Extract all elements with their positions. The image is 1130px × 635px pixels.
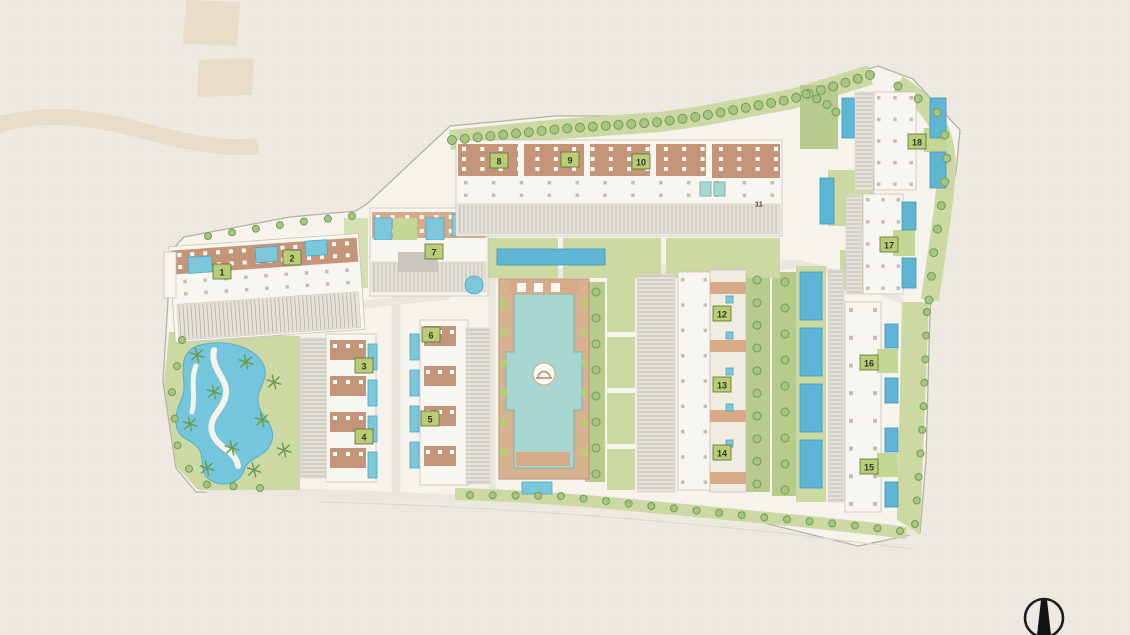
park-edge-trees-tree — [169, 389, 176, 396]
bosque-trees-tree — [753, 457, 761, 465]
vertical-lap-pool-1 — [800, 272, 822, 320]
right-lower-tree-row-tree — [920, 403, 927, 410]
courtyard-garden-trees-tree — [592, 392, 600, 400]
bottom-tree-row-tree — [648, 503, 655, 510]
building-label-15: 15 — [864, 463, 874, 473]
top-tree-row-tree — [537, 126, 546, 135]
right-upper-tree-row-tree — [943, 154, 951, 162]
top-tree-row-tree — [524, 128, 533, 137]
park-edge-trees-tree — [174, 363, 181, 370]
garden-column-trees-tree — [781, 278, 789, 286]
pool-15b — [885, 482, 898, 507]
plunge-pool — [726, 368, 733, 375]
top-tree-row-tree — [550, 125, 559, 134]
courtyard-garden-trees-tree — [592, 314, 600, 322]
decor-wave-band — [0, 117, 258, 147]
decor-rectangle-2 — [197, 58, 254, 97]
building-label-16: 16 — [864, 359, 874, 369]
bottom-tree-row-tree — [784, 516, 791, 523]
building-label-13: 13 — [717, 381, 727, 391]
top-tree-row-tree — [841, 78, 850, 87]
building-label-6: 6 — [428, 331, 433, 341]
bosque-trees-tree — [753, 299, 761, 307]
townhouse-8 — [458, 144, 518, 176]
right-lower-tree-row-tree — [919, 426, 926, 433]
top-tree-row-tree — [729, 106, 738, 115]
right-lower-tree-row-tree — [913, 497, 920, 504]
cluster-3-4-parking — [300, 338, 326, 478]
park-edge-trees-tree — [174, 442, 181, 449]
building-label-12: 12 — [717, 310, 727, 320]
central-courtyard — [499, 279, 589, 494]
park-edge-trees-tree — [203, 481, 210, 488]
vertical-lap-pool-3 — [800, 384, 822, 432]
bottom-tree-row-tree — [670, 505, 677, 512]
courtyard-garden-trees-tree — [592, 470, 600, 478]
right-upper-tree-row-tree — [934, 225, 942, 233]
pool-cluster-2b — [305, 240, 328, 256]
bottom-tree-row-tree — [716, 509, 723, 516]
garden-column-trees-tree — [781, 460, 789, 468]
bottom-tree-row-tree — [851, 522, 858, 529]
top-tree-row-tree — [448, 136, 457, 145]
vertical-lap-pool-2 — [800, 328, 822, 376]
right-upper-tree-row-tree — [925, 296, 933, 304]
pool-5a — [410, 406, 419, 432]
lawn-divider — [607, 388, 635, 393]
bottom-tree-row-tree — [693, 507, 700, 514]
pool-11a — [700, 182, 711, 196]
right-upper-tree-row-tree — [930, 249, 938, 257]
bottom-tree-row-tree — [603, 498, 610, 505]
top-tree-row-tree — [512, 129, 521, 138]
bottom-tree-row-tree — [806, 518, 813, 525]
right-upper-tree-row-tree — [914, 95, 922, 103]
cluster-18-parking — [855, 92, 873, 190]
brand-logo — [533, 363, 555, 385]
park-edge-trees-tree — [186, 465, 193, 472]
right-lower-tree-row-tree — [915, 473, 922, 480]
garden-column-trees-tree — [781, 434, 789, 442]
top-tree-row-tree — [866, 71, 875, 80]
bosque-trees-tree — [753, 389, 761, 397]
right-upper-tree-row-tree — [941, 178, 949, 186]
bar-13 — [710, 340, 746, 352]
green-16 — [877, 349, 898, 373]
right-upper-tree-row-tree — [937, 202, 945, 210]
right-lower-tree-row-tree — [922, 356, 929, 363]
pavilion-bay — [534, 283, 543, 292]
garden-column-trees-tree — [781, 330, 789, 338]
top-tree-row-tree — [816, 86, 825, 95]
top-tree-row-tree — [678, 114, 687, 123]
masterplan-svg: 123456789101112131415161718 — [0, 0, 1130, 635]
west-block — [164, 252, 176, 298]
building-label-14: 14 — [717, 449, 727, 459]
bar-3a — [330, 340, 366, 360]
pool-cluster-1 — [188, 256, 213, 274]
garden-column-trees-tree — [781, 356, 789, 364]
top-tree-row-tree — [601, 121, 610, 130]
courtyard-pavilion-south — [516, 452, 570, 466]
bottom-tree-row-tree — [738, 512, 745, 519]
bottom-tree-row-tree — [512, 492, 519, 499]
bottom-tree-row-tree — [580, 495, 587, 502]
pool-3b — [368, 380, 377, 406]
pool-5b — [410, 442, 419, 468]
northeast-garden-trees-tree — [802, 90, 810, 98]
northeast-garden-trees-tree — [832, 108, 840, 116]
bar-6b — [424, 366, 456, 386]
compass-icon — [1025, 599, 1063, 635]
top-tree-row-tree — [665, 116, 674, 125]
park-edge-trees-tree — [257, 485, 264, 492]
pool-4b — [368, 452, 377, 478]
pool-ne-a — [842, 98, 856, 138]
top-row-courtyard — [458, 178, 780, 202]
park-path-2 — [192, 366, 196, 412]
building-label-7: 7 — [431, 248, 436, 258]
building-label-5: 5 — [427, 415, 432, 425]
green-15 — [877, 453, 898, 477]
pool-7a — [374, 218, 392, 240]
building-cluster-3-4 — [300, 334, 377, 482]
pool-15a — [885, 428, 898, 452]
garden-column-trees-tree — [781, 304, 789, 312]
bar-4b — [330, 448, 366, 468]
bottom-tree-row-tree — [761, 514, 768, 521]
garden-column-trees-tree — [781, 408, 789, 416]
bottom-tree-row-tree — [557, 493, 564, 500]
bottom-tree-row-tree — [489, 492, 496, 499]
top-left-cluster-trees-tree — [229, 229, 236, 236]
top-left-cluster-trees-tree — [252, 225, 259, 232]
park-edge-trees-tree — [179, 337, 186, 344]
building-label-18: 18 — [912, 138, 922, 148]
bar-14b — [710, 472, 746, 484]
right-upper-tree-row-tree — [941, 131, 949, 139]
vertical-lap-pool-4 — [800, 440, 822, 488]
right-lower-tree-row-tree — [917, 450, 924, 457]
pool-17a — [902, 202, 916, 230]
top-tree-row-tree — [853, 74, 862, 83]
stripe-zone — [855, 92, 873, 190]
pool-17b — [902, 258, 916, 288]
top-left-cluster-trees-tree — [324, 215, 331, 222]
top-tree-row-tree — [653, 118, 662, 127]
building-label-17: 17 — [884, 241, 894, 251]
pool-cluster-2a — [255, 246, 278, 262]
east-parking-column — [828, 270, 844, 502]
top-row-parking — [458, 204, 780, 234]
top-tree-row-tree — [486, 132, 495, 141]
park-edge-trees-tree — [230, 483, 237, 490]
top-tree-row-tree — [499, 130, 508, 139]
lawn-divider — [607, 332, 635, 337]
courtyard-garden-trees-tree — [592, 418, 600, 426]
masterplan-canvas: 123456789101112131415161718 — [0, 0, 1130, 635]
plunge-pool — [726, 332, 733, 339]
background-decor — [0, 0, 258, 147]
bottom-tree-row-tree — [625, 500, 632, 507]
courtyard-garden-trees-tree — [592, 366, 600, 374]
bosque-trees-tree — [753, 480, 761, 488]
pavilion-bay — [551, 283, 560, 292]
bottom-tree-row-tree — [897, 528, 904, 535]
northeast-garden-trees-tree — [823, 101, 831, 109]
right-lower-tree-row-tree — [912, 521, 919, 528]
right-upper-tree-row-tree — [927, 272, 935, 280]
top-tree-row-tree — [754, 101, 763, 110]
compass-needle — [1037, 600, 1051, 635]
round-pool — [465, 276, 483, 294]
bar-3b — [330, 376, 366, 396]
top-left-cluster-trees-tree — [349, 213, 356, 220]
bosque-trees-tree — [753, 367, 761, 375]
pool-16a — [885, 324, 898, 348]
pool-7b — [426, 218, 444, 240]
plunge-pool — [726, 404, 733, 411]
top-tree-row-tree — [779, 96, 788, 105]
mid-parking-column — [637, 274, 675, 492]
building-label-4: 4 — [361, 433, 366, 443]
decor-rectangle-1 — [183, 0, 240, 46]
top-left-cluster-trees-tree — [205, 233, 212, 240]
building-cluster-1-2 — [169, 233, 365, 342]
bottom-tree-row-tree — [467, 492, 474, 499]
top-left-cluster-trees-tree — [300, 218, 307, 225]
bar-14 — [710, 410, 746, 422]
northeast-garden-trees-tree — [813, 95, 821, 103]
building-cluster-5-6 — [410, 320, 490, 485]
pool-6b — [410, 370, 419, 396]
top-tree-row-tree — [614, 120, 623, 129]
cluster-17-parking — [846, 194, 862, 294]
plunge-pool — [726, 296, 733, 303]
pool-ne-b — [820, 178, 834, 224]
right-upper-tree-row-tree — [933, 109, 941, 117]
bosque-trees-tree — [753, 344, 761, 352]
top-left-cluster-trees-tree — [276, 222, 283, 229]
pool-11b — [714, 182, 725, 196]
garden-column-trees-tree — [781, 486, 789, 494]
bottom-tree-row-tree — [829, 520, 836, 527]
top-tree-row-tree — [588, 122, 597, 131]
right-lower-tree-row-tree — [923, 332, 930, 339]
right-lower-tree-row-tree — [924, 309, 931, 316]
top-tree-row-tree — [627, 120, 636, 129]
courtyard-garden-trees-tree — [592, 444, 600, 452]
courtyard-garden-trees-tree — [592, 288, 600, 296]
bosque-trees-tree — [753, 321, 761, 329]
building-label-2: 2 — [289, 254, 294, 264]
bosque-trees-tree — [753, 276, 761, 284]
bar-5b — [424, 446, 456, 466]
stripe-zone — [637, 274, 675, 492]
top-tree-row-tree — [640, 119, 649, 128]
bosque-trees-tree — [753, 412, 761, 420]
building-label-11: 11 — [755, 200, 763, 209]
lawn-divider — [607, 444, 635, 449]
building-label-9: 9 — [567, 156, 572, 166]
townhouse-10b — [656, 144, 706, 176]
cluster-15-16-base — [845, 302, 881, 512]
pavilion-bay — [517, 283, 526, 292]
lap-pool — [497, 249, 605, 265]
pool-6a — [410, 334, 419, 360]
building-label-10: 10 — [636, 158, 646, 168]
top-tree-row-tree — [829, 82, 838, 91]
bottom-tree-row-tree — [535, 492, 542, 499]
building-label-1: 1 — [219, 268, 224, 278]
cluster-5-6-parking — [466, 328, 490, 484]
top-tree-row-tree — [691, 113, 700, 122]
bosque-trees-tree — [753, 435, 761, 443]
top-tree-row-tree — [460, 134, 469, 143]
right-upper-tree-row-tree — [894, 82, 902, 90]
top-tree-row-tree — [703, 110, 712, 119]
top-tree-row-tree — [563, 124, 572, 133]
lawn-column — [607, 278, 635, 490]
top-tree-row-tree — [741, 103, 750, 112]
top-tree-row-tree — [716, 108, 725, 117]
building-label-3: 3 — [361, 362, 366, 372]
park-edge-trees-tree — [171, 415, 178, 422]
stripe-zone — [828, 270, 844, 502]
garden-column-trees-tree — [781, 382, 789, 390]
top-tree-row-tree — [473, 133, 482, 142]
top-tree-row-tree — [767, 99, 776, 108]
right-lower-tree-row-tree — [921, 379, 928, 386]
bottom-tree-row-tree — [874, 525, 881, 532]
bar-12 — [710, 282, 746, 294]
top-tree-row-tree — [576, 123, 585, 132]
top-tree-row-tree — [792, 93, 801, 102]
building-label-8: 8 — [496, 157, 501, 167]
courtyard-garden-trees-tree — [592, 340, 600, 348]
mid-units-column — [678, 272, 710, 490]
pool-16b — [885, 378, 898, 403]
